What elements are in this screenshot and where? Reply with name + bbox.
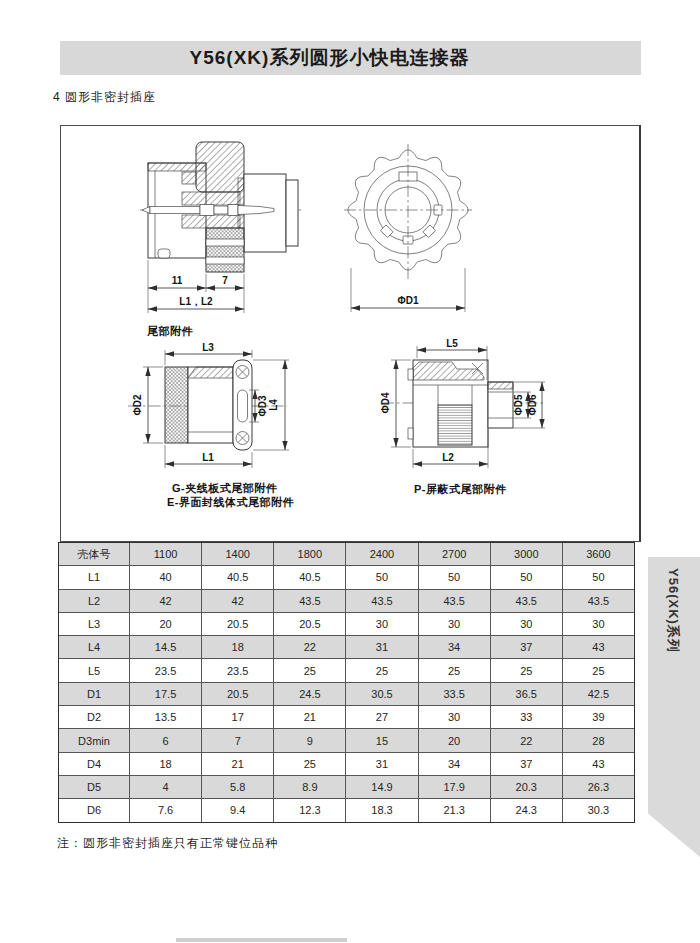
value-cell: 24.3 <box>490 799 562 821</box>
table-row: D418212531343743 <box>59 752 634 775</box>
footnote: 注：圆形非密封插座只有正常键位品种 <box>57 835 278 852</box>
front-key-tabs <box>380 205 442 244</box>
value-cell: 30.3 <box>562 799 634 821</box>
tail-section-label: 尾部附件 <box>147 324 193 339</box>
value-cell: 26.3 <box>562 776 634 798</box>
table-row: D117.520.524.530.533.536.542.5 <box>59 682 634 705</box>
value-cell: 20 <box>129 613 201 635</box>
value-cell: 39 <box>562 706 634 728</box>
dim-label-d5: ΦD5 <box>513 394 524 415</box>
row-label-cell: D6 <box>59 799 129 821</box>
dim-label-d6: ΦD6 <box>527 394 538 415</box>
table-row: D545.88.914.917.920.326.3 <box>59 775 634 798</box>
table-row: L2424243.543.543.543.543.5 <box>59 589 634 612</box>
value-cell: 30 <box>490 613 562 635</box>
tail-p-drawing: L5 ΦD4 ΦD5 ΦD6 L2 <box>378 336 548 476</box>
dim-label-l4: L4 <box>268 399 279 411</box>
value-cell: 40 <box>129 566 201 588</box>
value-cell: 20.3 <box>490 776 562 798</box>
value-cell: 22 <box>490 729 562 751</box>
key-tab <box>380 225 393 238</box>
value-cell: 21 <box>201 753 273 775</box>
value-cell: 14.5 <box>129 636 201 658</box>
row-label-cell: L1 <box>59 566 129 588</box>
value-cell: 31 <box>345 636 417 658</box>
value-cell: 7.6 <box>129 799 201 821</box>
dim-label-7: 7 <box>222 275 228 286</box>
caption-p: P-屏蔽式尾部附件 <box>414 482 507 497</box>
value-cell: 43.5 <box>562 590 634 612</box>
value-cell: 20 <box>418 729 490 751</box>
value-cell: 43 <box>562 636 634 658</box>
value-cell: 25 <box>273 753 345 775</box>
header-banner: Y56(XK)系列圆形小快电连接器 <box>60 41 641 75</box>
caption-e: E-界面封线体式尾部附件 <box>167 495 294 510</box>
plug-front-drawing: ΦD1 <box>338 128 478 313</box>
value-cell: 43.5 <box>273 590 345 612</box>
value-cell: 20.5 <box>273 613 345 635</box>
dim-label-l2: L2 <box>442 452 454 463</box>
value-cell: 43 <box>562 753 634 775</box>
caption-g: G-夹线板式尾部附件 <box>172 481 277 496</box>
table-header-cell: 1100 <box>129 543 201 565</box>
value-cell: 23.5 <box>129 659 201 681</box>
value-cell: 20.5 <box>201 613 273 635</box>
value-cell: 24.5 <box>273 683 345 705</box>
table-row: L414.5182231343743 <box>59 635 634 658</box>
value-cell: 25 <box>345 659 417 681</box>
value-cell: 33.5 <box>418 683 490 705</box>
row-label-cell: D2 <box>59 706 129 728</box>
table-header-cell: 壳体号 <box>59 543 129 565</box>
value-cell: 33 <box>490 706 562 728</box>
datasheet-page: Y56(XK)系列圆形小快电连接器 4 圆形非密封插座 <box>0 0 700 943</box>
value-cell: 40.5 <box>273 566 345 588</box>
tail-ge-drawing: L3 L1 ΦD2 ΦD3 L4 <box>125 338 295 478</box>
dim-label-l1-l2: L1，L2 <box>179 296 213 307</box>
table-row: L32020.520.530303030 <box>59 612 634 635</box>
value-cell: 37 <box>490 636 562 658</box>
flange-slot <box>238 390 248 422</box>
value-cell: 42 <box>129 590 201 612</box>
row-label-cell: D4 <box>59 753 129 775</box>
dim-label-l5: L5 <box>446 338 458 349</box>
value-cell: 20.5 <box>201 683 273 705</box>
spec-table: 壳体号1100140018002400270030003600L14040.54… <box>58 542 635 823</box>
dim-label-d1: ΦD1 <box>398 295 419 306</box>
table-row: L14040.540.550505050 <box>59 565 634 588</box>
value-cell: 30.5 <box>345 683 417 705</box>
value-cell: 25 <box>418 659 490 681</box>
dim-label-11: 11 <box>172 275 183 286</box>
value-cell: 50 <box>562 566 634 588</box>
table-row: L523.523.52525252525 <box>59 658 634 681</box>
value-cell: 21.3 <box>418 799 490 821</box>
value-cell: 13.5 <box>129 706 201 728</box>
value-cell: 22 <box>273 636 345 658</box>
key-tab <box>423 225 436 238</box>
value-cell: 15 <box>345 729 417 751</box>
value-cell: 40.5 <box>201 566 273 588</box>
table-row: D67.69.412.318.321.324.330.3 <box>59 798 634 821</box>
value-cell: 31 <box>345 753 417 775</box>
table-header-cell: 1800 <box>273 543 345 565</box>
value-cell: 9.4 <box>201 799 273 821</box>
value-cell: 8.9 <box>273 776 345 798</box>
value-cell: 6 <box>129 729 201 751</box>
table-header-cell: 3000 <box>490 543 562 565</box>
value-cell: 14.9 <box>345 776 417 798</box>
value-cell: 17.5 <box>129 683 201 705</box>
value-cell: 18.3 <box>345 799 417 821</box>
dim-label-l1: L1 <box>202 452 214 463</box>
value-cell: 7 <box>201 729 273 751</box>
dim-label-d2: ΦD2 <box>132 394 143 415</box>
table-header-cell: 2400 <box>345 543 417 565</box>
value-cell: 50 <box>490 566 562 588</box>
value-cell: 21 <box>273 706 345 728</box>
table-header-cell: 1400 <box>201 543 273 565</box>
dim-label-d3: ΦD3 <box>257 395 268 416</box>
value-cell: 23.5 <box>201 659 273 681</box>
value-cell: 30 <box>562 613 634 635</box>
value-cell: 28 <box>562 729 634 751</box>
value-cell: 42 <box>201 590 273 612</box>
row-label-cell: L5 <box>59 659 129 681</box>
dim-label-d4: ΦD4 <box>380 392 391 413</box>
page-title: Y56(XK)系列圆形小快电连接器 <box>190 45 470 71</box>
value-cell: 43.5 <box>345 590 417 612</box>
value-cell: 12.3 <box>273 799 345 821</box>
dim-label-l3: L3 <box>202 342 214 353</box>
plug-section-geometry <box>140 142 304 272</box>
value-cell: 4 <box>129 776 201 798</box>
value-cell: 34 <box>418 636 490 658</box>
row-label-cell: D1 <box>59 683 129 705</box>
value-cell: 30 <box>345 613 417 635</box>
value-cell: 36.5 <box>490 683 562 705</box>
value-cell: 42.5 <box>562 683 634 705</box>
value-cell: 25 <box>273 659 345 681</box>
table-header-row: 壳体号1100140018002400270030003600 <box>59 543 634 565</box>
value-cell: 30 <box>418 706 490 728</box>
value-cell: 27 <box>345 706 417 728</box>
value-cell: 17.9 <box>418 776 490 798</box>
value-cell: 18 <box>201 636 273 658</box>
value-cell: 43.5 <box>490 590 562 612</box>
row-label-cell: L2 <box>59 590 129 612</box>
row-label-cell: L3 <box>59 613 129 635</box>
value-cell: 50 <box>418 566 490 588</box>
page-bottom-bar <box>176 938 347 942</box>
plug-section-drawing: 11 7 L1，L2 <box>138 136 308 316</box>
section-heading: 4 圆形非密封插座 <box>53 89 156 106</box>
table-header-cell: 2700 <box>418 543 490 565</box>
value-cell: 17 <box>201 706 273 728</box>
value-cell: 5.8 <box>201 776 273 798</box>
value-cell: 37 <box>490 753 562 775</box>
side-tab-label: Y56(XK)系列 <box>664 568 682 653</box>
table-row: D213.5172127303339 <box>59 705 634 728</box>
value-cell: 43.5 <box>418 590 490 612</box>
table-header-cell: 3600 <box>562 543 634 565</box>
value-cell: 50 <box>345 566 417 588</box>
side-tab: Y56(XK)系列 <box>648 557 700 857</box>
row-label-cell: D3min <box>59 729 129 751</box>
row-label-cell: L4 <box>59 636 129 658</box>
value-cell: 30 <box>418 613 490 635</box>
value-cell: 25 <box>562 659 634 681</box>
row-label-cell: D5 <box>59 776 129 798</box>
value-cell: 9 <box>273 729 345 751</box>
value-cell: 25 <box>490 659 562 681</box>
value-cell: 18 <box>129 753 201 775</box>
value-cell: 34 <box>418 753 490 775</box>
table-row: D3min67915202228 <box>59 728 634 751</box>
